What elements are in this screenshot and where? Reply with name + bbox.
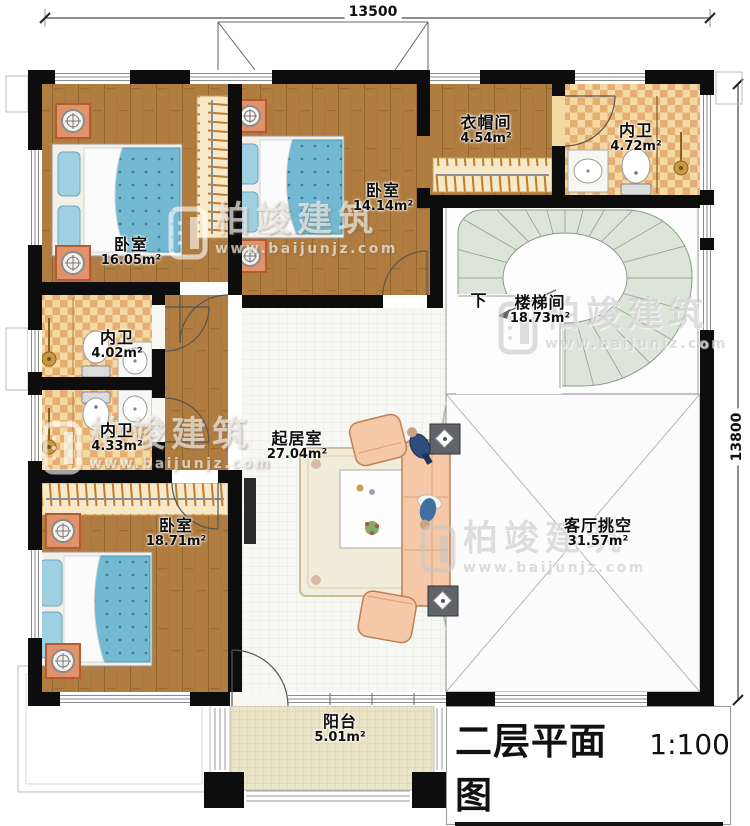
floor-plan-canvas: 柏竣建筑www.baijunjz.com 柏竣建筑www.baijunjz.co… (0, 0, 750, 826)
room-label-balcony: 阳台 5.01m² (314, 713, 365, 745)
stair-direction-label: 下 (470, 292, 487, 310)
pillar (204, 772, 244, 808)
dimension-right: 13800 (729, 409, 745, 466)
room-label-bedroom-tm: 卧室 14.14m² (353, 182, 413, 214)
room-label-living: 起居室 27.04m² (267, 430, 327, 462)
room-label-bedroom-tl: 卧室 16.05m² (101, 236, 161, 268)
plan-scale: 1:100 (649, 728, 730, 761)
title-block: 二层平面图 1:100 本层建筑面积：162.42m² 层高：3.3m (446, 706, 731, 825)
side-table (430, 424, 460, 454)
roof-outline (218, 22, 428, 70)
toilet (621, 149, 651, 195)
room-label-cloakroom: 衣帽间 4.54m² (460, 114, 511, 146)
room-label-stairwell: 楼梯间 18.73m² (510, 294, 570, 326)
room-label-bedroom-bl: 卧室 18.71m² (146, 517, 206, 549)
title-underline (455, 822, 723, 826)
room-label-void: 客厅挑空 31.57m² (564, 517, 632, 549)
tv (244, 478, 256, 544)
room-label-bath-tr: 内卫 4.72m² (610, 122, 661, 154)
room-label-bath-ml2: 内卫 4.33m² (91, 422, 142, 454)
bed-bedroom-tm (232, 136, 344, 238)
side-table (428, 586, 458, 616)
coffee-table (340, 470, 408, 548)
plan-title: 二层平面图 (455, 711, 639, 819)
dimension-top: 13500 (345, 4, 402, 20)
sofa-armchair-bottom (357, 590, 418, 645)
room-label-bath-ml1: 内卫 4.02m² (91, 329, 142, 361)
sink (568, 150, 608, 192)
